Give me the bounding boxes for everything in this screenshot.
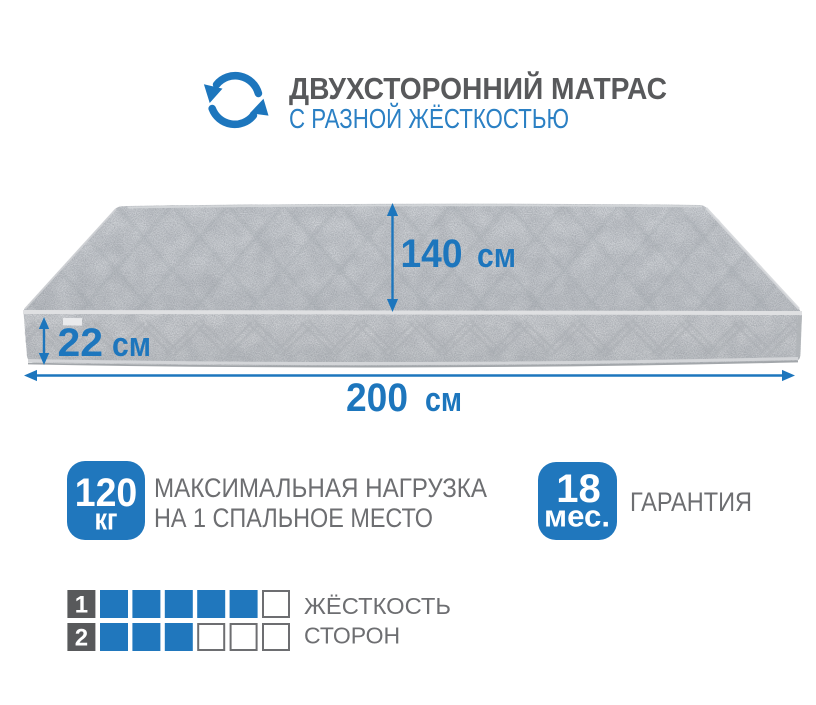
svg-text:НА 1 СПАЛЬНОЕ МЕСТО: НА 1 СПАЛЬНОЕ МЕСТО xyxy=(154,503,433,533)
svg-text:1: 1 xyxy=(75,592,88,619)
svg-text:ГАРАНТИЯ: ГАРАНТИЯ xyxy=(630,487,752,517)
svg-text:2: 2 xyxy=(75,625,88,652)
svg-text:200: 200 xyxy=(346,376,408,420)
svg-text:140: 140 xyxy=(401,232,463,276)
svg-text:см: см xyxy=(477,237,516,275)
svg-text:22: 22 xyxy=(58,321,104,365)
svg-text:МАКСИМАЛЬНАЯ НАГРУЗКА: МАКСИМАЛЬНАЯ НАГРУЗКА xyxy=(154,473,487,503)
svg-text:ДВУХСТОРОННИЙ МАТРАС: ДВУХСТОРОННИЙ МАТРАС xyxy=(289,70,667,106)
svg-text:кг: кг xyxy=(95,502,118,537)
svg-text:мес.: мес. xyxy=(544,499,610,534)
svg-text:см: см xyxy=(112,326,151,364)
svg-text:ЖЁСТКОСТЬ: ЖЁСТКОСТЬ xyxy=(304,593,451,619)
svg-text:СТОРОН: СТОРОН xyxy=(304,623,400,649)
svg-text:см: см xyxy=(425,381,462,419)
svg-text:С РАЗНОЙ ЖЁСТКОСТЬЮ: С РАЗНОЙ ЖЁСТКОСТЬЮ xyxy=(289,103,569,134)
